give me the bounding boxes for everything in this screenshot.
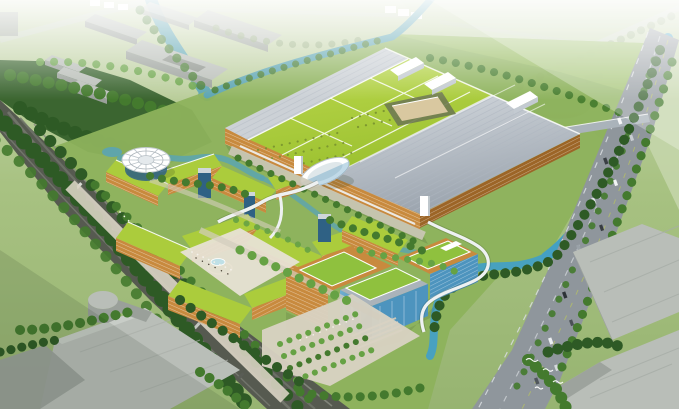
aerial-rendering [0, 0, 679, 409]
rendering-canvas [0, 0, 679, 409]
fountain [211, 259, 225, 266]
